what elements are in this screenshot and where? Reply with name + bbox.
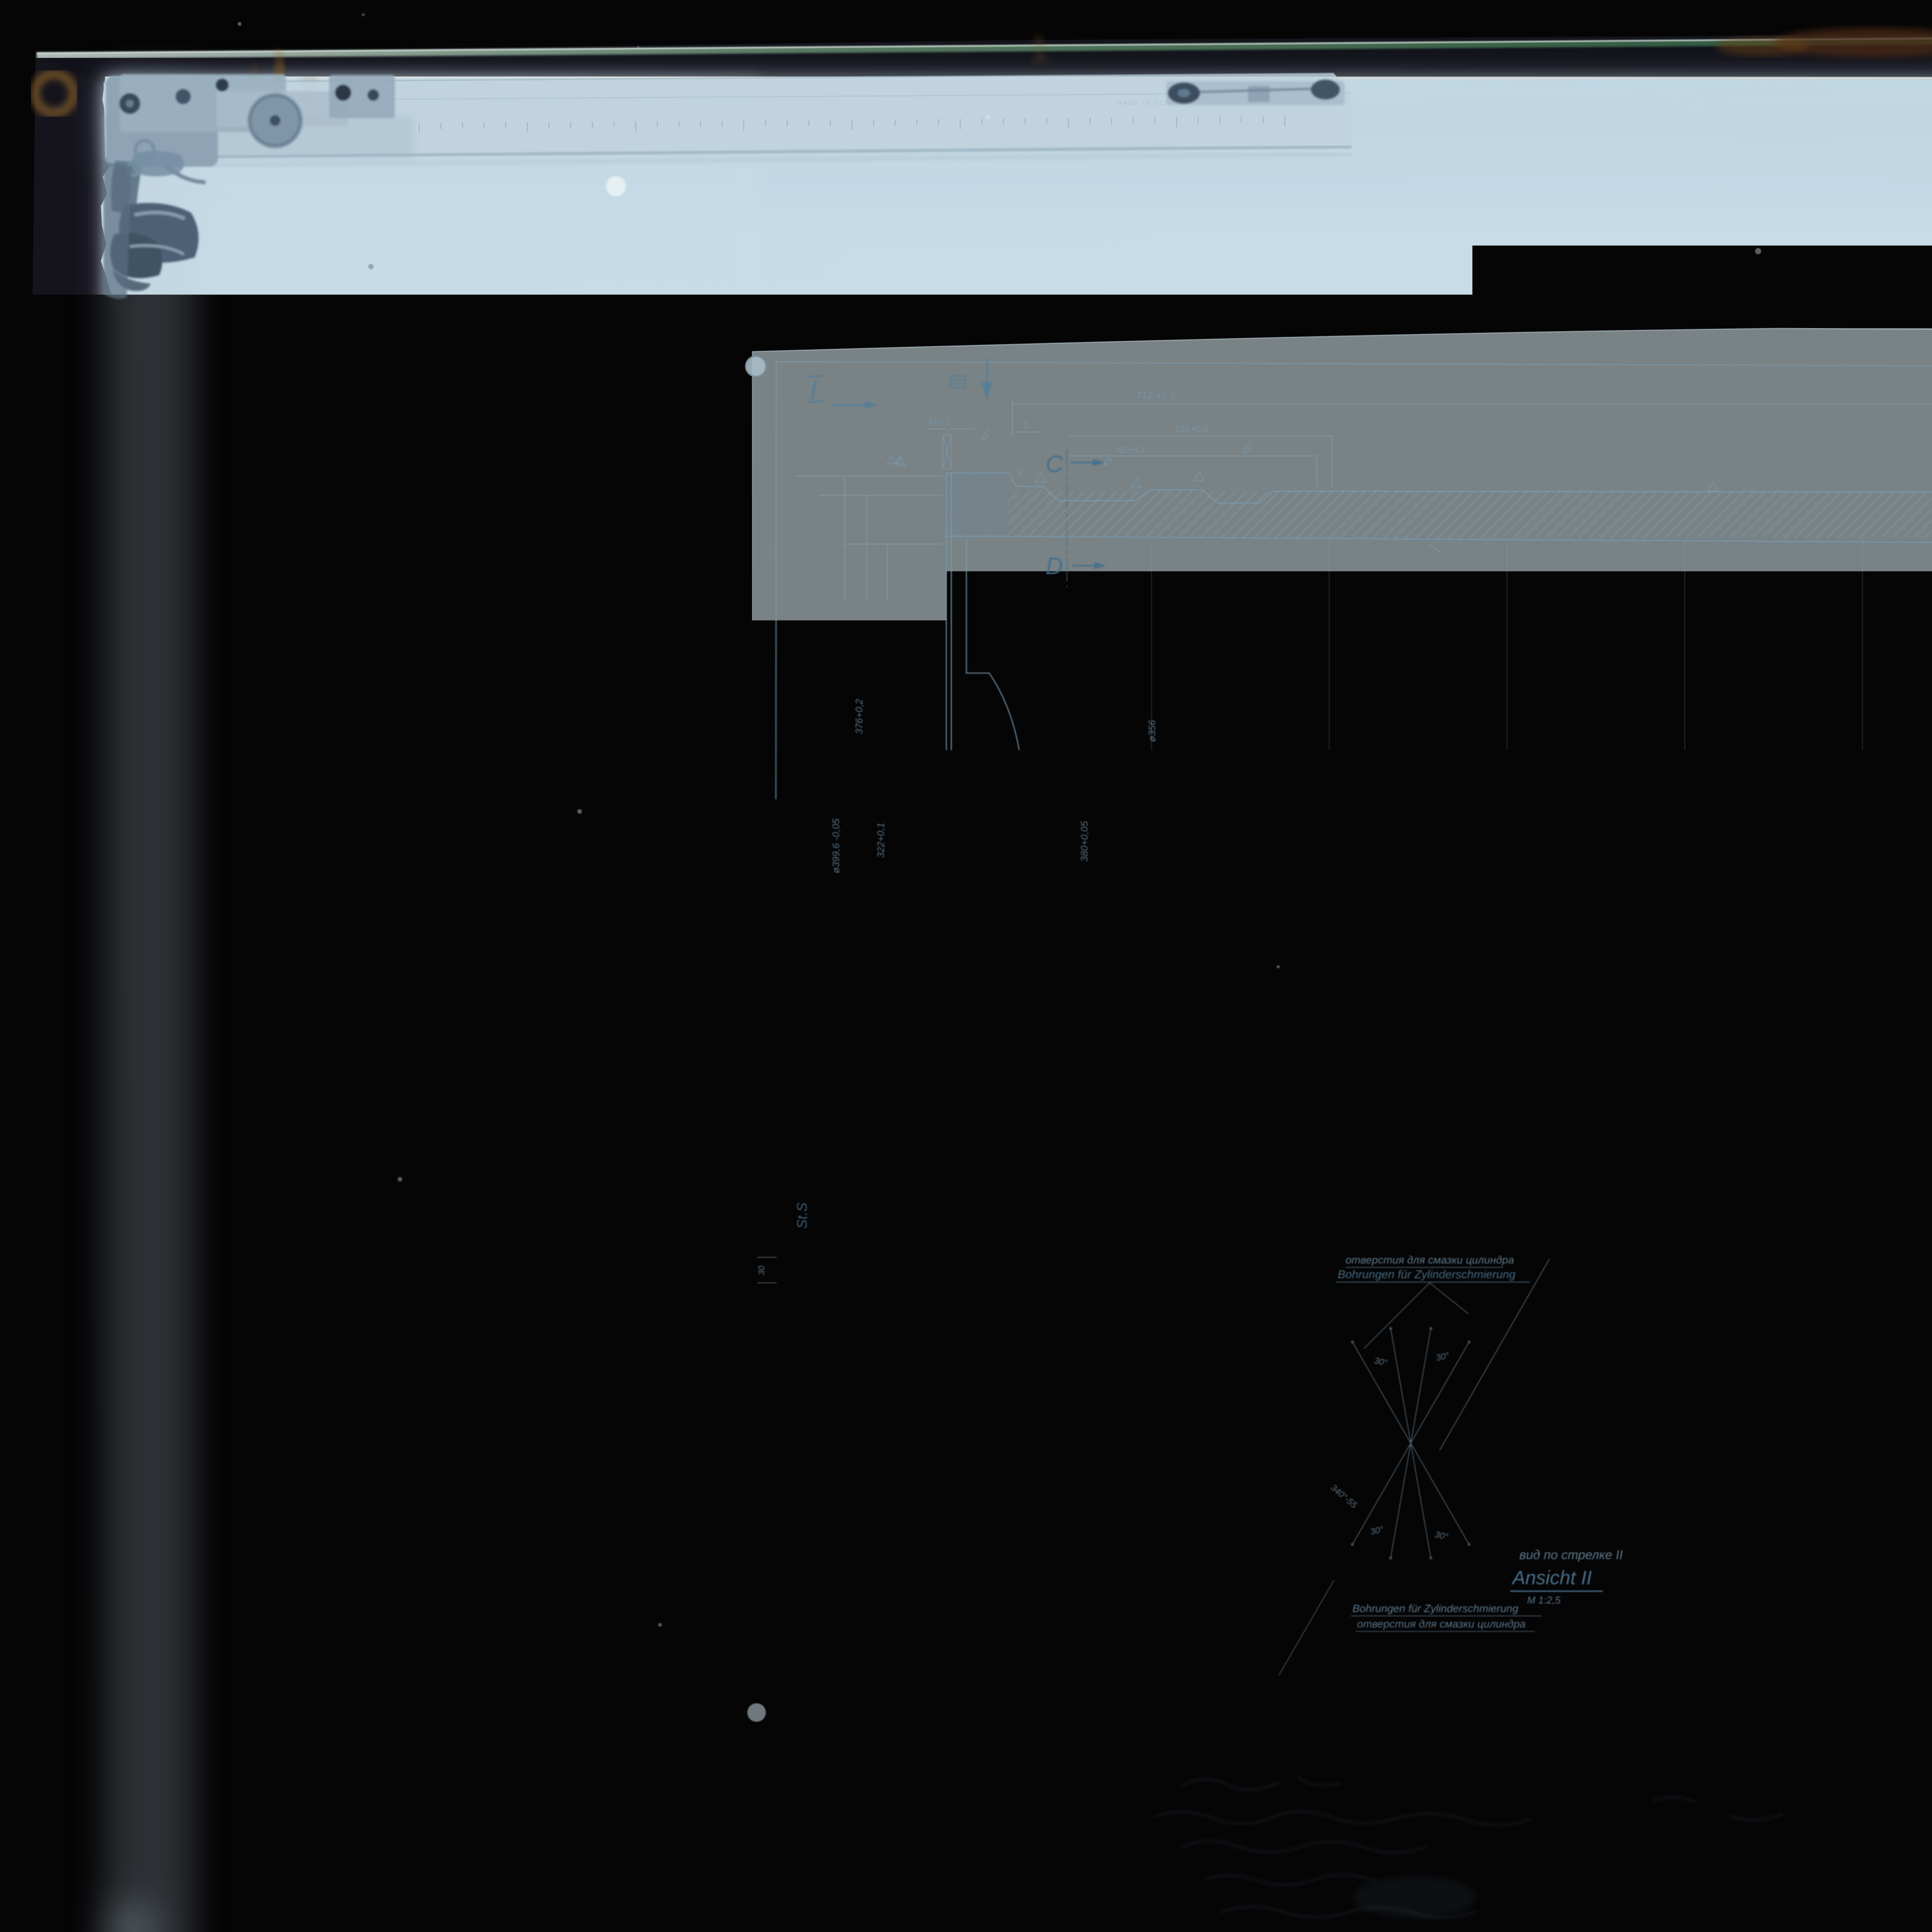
svg-text:712 +0,5: 712 +0,5 bbox=[1136, 389, 1175, 401]
svg-text:A: A bbox=[1057, 1231, 1071, 1253]
svg-text:360+0,1: 360+0,1 bbox=[1673, 894, 1684, 927]
svg-text:46 +0,5: 46 +0,5 bbox=[1719, 1286, 1750, 1296]
svg-text:разрез Е-F: разрез Е-F bbox=[1820, 1456, 1881, 1469]
svg-text:175 +0,1: 175 +0,1 bbox=[989, 1272, 1024, 1282]
svg-text:C: C bbox=[1046, 451, 1063, 478]
svg-text:Bezeichnung „ St.S“: Bezeichnung „ St.S“ bbox=[788, 1339, 888, 1351]
svg-text:для стороны распределения): для стороны распределения) bbox=[780, 1420, 936, 1432]
svg-text:вид по стрелке I: вид по стрелке I bbox=[1147, 1553, 1247, 1567]
svg-text:940+0,5: 940+0,5 bbox=[1592, 1185, 1627, 1196]
svg-text:40±0,1: 40±0,1 bbox=[974, 1155, 1003, 1166]
svg-text:вид по стрелке II: вид по стрелке II bbox=[1519, 1548, 1623, 1562]
svg-text:1: 1 bbox=[1029, 28, 1050, 69]
svg-text:375±0,2: 375±0,2 bbox=[1140, 894, 1151, 927]
svg-text:Schnitt A-B: Schnitt A-B bbox=[1828, 678, 1923, 700]
svg-text:165+0,8: 165+0,8 bbox=[1175, 424, 1209, 434]
svg-text:90: 90 bbox=[1090, 1146, 1100, 1157]
svg-text:1: 1 bbox=[1023, 420, 1028, 430]
svg-text:b: b bbox=[1224, 1096, 1229, 1105]
svg-text:ø370: ø370 bbox=[1318, 906, 1328, 927]
svg-text:220+0,1: 220+0,1 bbox=[1496, 894, 1506, 927]
svg-text:прошлифовать: прошлифовать bbox=[1492, 609, 1570, 621]
svg-text:заклеймовано в верхней: заклеймовано в верхней bbox=[782, 1435, 910, 1447]
svg-text:(Abkürzung für Steuerseite): (Abkürzung für Steuerseite) bbox=[782, 1354, 920, 1366]
svg-text:8+0,1: 8+0,1 bbox=[927, 417, 951, 427]
svg-text:Bohrungen für Zylinderschmier: Bohrungen für Zylinderschmierung bbox=[1352, 1602, 1519, 1614]
svg-text:Ansicht II: Ansicht II bbox=[1511, 1567, 1592, 1588]
svg-text:St.S: St.S bbox=[794, 1202, 810, 1229]
svg-text:Schnitt E-F: Schnitt E-F bbox=[1814, 1471, 1903, 1492]
svg-text:части ребра: части ребра bbox=[786, 1449, 854, 1462]
svg-text:вид по стрелке III: вид по стрелке III bbox=[808, 1104, 895, 1115]
svg-text:b: b bbox=[1086, 1096, 1090, 1105]
svg-text:M 1:2,5: M 1:2,5 bbox=[1155, 1597, 1189, 1608]
svg-text:B: B bbox=[1057, 1610, 1071, 1632]
svg-text:15: 15 bbox=[1252, 1155, 1263, 1166]
svg-text:170: 170 bbox=[1151, 1168, 1168, 1179]
svg-text:Ansicht III: Ansicht III bbox=[799, 1118, 875, 1137]
svg-text:10+0,3: 10+0,3 bbox=[981, 613, 1010, 624]
svg-text:M 1:2,5: M 1:2,5 bbox=[1527, 1594, 1561, 1606]
svg-text:15: 15 bbox=[1182, 1146, 1193, 1157]
svg-text:30: 30 bbox=[757, 1265, 766, 1275]
svg-text:разрез А-В: разрез А-В bbox=[1835, 663, 1900, 677]
svg-text:5°: 5° bbox=[1017, 468, 1026, 478]
svg-text:E: E bbox=[884, 774, 898, 798]
svg-text:174+0,1: 174+0,1 bbox=[1101, 1272, 1134, 1282]
svg-text:Ansicht I: Ansicht I bbox=[1139, 1569, 1214, 1591]
svg-text:380+0,05: 380+0,05 bbox=[1079, 821, 1090, 862]
svg-text:698: 698 bbox=[1507, 1168, 1523, 1179]
svg-text:D: D bbox=[1046, 553, 1063, 580]
svg-text:отверстия для смазки цилиндр: отверстия для смазки цилиндра bbox=[1345, 1254, 1514, 1266]
svg-text:gehont: gehont bbox=[1499, 594, 1532, 606]
svg-text:Bohrungen für Zylinderschmie: Bohrungen für Zylinderschmierung bbox=[1338, 1268, 1516, 1281]
svg-text:12: 12 bbox=[1020, 1124, 1031, 1134]
svg-text:отверстия для смазки цилиндр: отверстия для смазки цилиндра bbox=[1357, 1618, 1526, 1630]
svg-text:322+0,1: 322+0,1 bbox=[876, 823, 886, 858]
svg-text:I: I bbox=[810, 376, 817, 404]
svg-text:gen.: gen. bbox=[885, 1383, 906, 1395]
svg-text:ø356: ø356 bbox=[1147, 720, 1158, 742]
svg-text:F: F bbox=[1050, 764, 1064, 787]
svg-text:Обозначение „St.S“ (сокрощение: Обозначение „St.S“ (сокрощение bbox=[784, 1405, 956, 1418]
svg-text:oberhalb der Rippe eingesch: oberhalb der Rippe eingeschla bbox=[785, 1368, 937, 1381]
svg-text:376+0,2: 376+0,2 bbox=[854, 699, 865, 734]
svg-text:c: c bbox=[926, 1283, 930, 1293]
svg-text:365°: 365° bbox=[1851, 908, 1862, 927]
svg-text:85+0,2: 85+0,2 bbox=[1117, 445, 1145, 455]
svg-text:ø399,6 -0,05: ø399,6 -0,05 bbox=[831, 818, 842, 873]
